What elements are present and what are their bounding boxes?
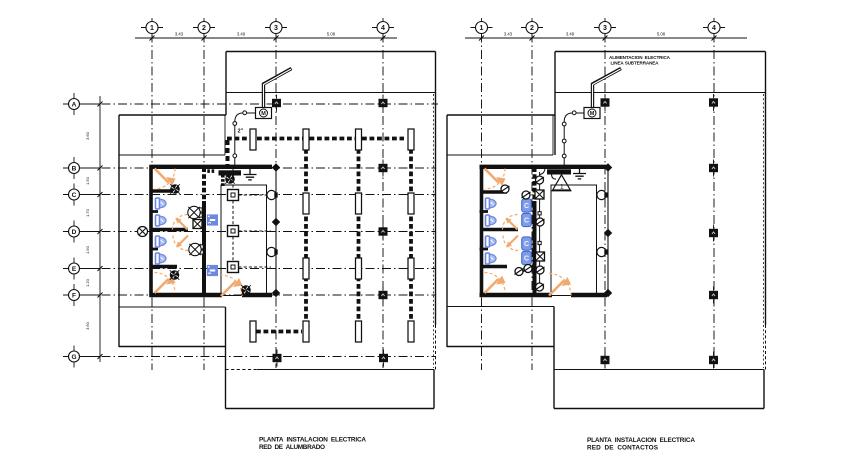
svg-text:3.60: 3.60 [85,321,90,330]
svg-text:2": 2" [238,129,244,135]
svg-text:3: 3 [603,25,607,32]
svg-text:1.50: 1.50 [85,176,90,185]
svg-text:3.60: 3.60 [85,131,90,140]
svg-text:5.08: 5.08 [327,32,336,37]
svg-text:3.49: 3.49 [566,32,575,37]
svg-text:2: 2 [530,25,534,32]
svg-text:1.50: 1.50 [85,245,90,254]
svg-text:1: 1 [150,25,154,32]
svg-text:ALIMENTACION ELECTRICA: ALIMENTACION ELECTRICA [609,55,671,60]
svg-text:G: G [71,354,76,361]
svg-text:3: 3 [274,25,278,32]
svg-text:LINEA SUBTERRANEA: LINEA SUBTERRANEA [611,61,660,66]
svg-text:PLANTA INSTALACION ELECTRICA: PLANTA INSTALACION ELECTRICA [259,437,366,444]
svg-text:1: 1 [480,25,484,32]
svg-text:3.49: 3.49 [237,32,246,37]
svg-text:1.20: 1.20 [85,278,90,287]
svg-text:F: F [72,293,76,300]
svg-text:4: 4 [712,25,716,32]
svg-text:3.43: 3.43 [504,32,513,37]
svg-text:3.43: 3.43 [175,32,184,37]
svg-text:C: C [72,192,77,199]
svg-text:A: A [72,102,77,109]
svg-text:B: B [72,166,77,173]
svg-text:2: 2 [202,25,206,32]
svg-text:E: E [72,266,77,273]
svg-text:5.08: 5.08 [657,32,666,37]
svg-text:RED DE CONTACTOS: RED DE CONTACTOS [587,445,659,452]
svg-text:1.70: 1.70 [85,208,90,217]
svg-text:D: D [72,229,77,236]
svg-text:PLANTA INSTALACION ELECTRICA: PLANTA INSTALACION ELECTRICA [587,437,695,444]
svg-text:4: 4 [381,25,385,32]
svg-text:RED DE ALUMBRADO: RED DE ALUMBRADO [259,444,325,451]
